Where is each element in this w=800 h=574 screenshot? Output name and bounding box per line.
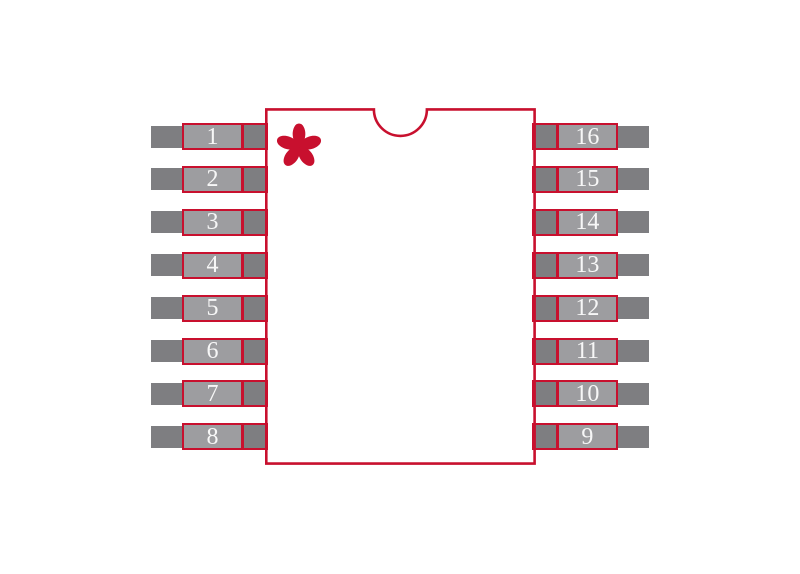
ic-footprint-diagram: 12345678161514131211109 [0,0,800,574]
pin1-asterisk-icon [275,124,323,169]
package-outline-layer [0,0,800,574]
